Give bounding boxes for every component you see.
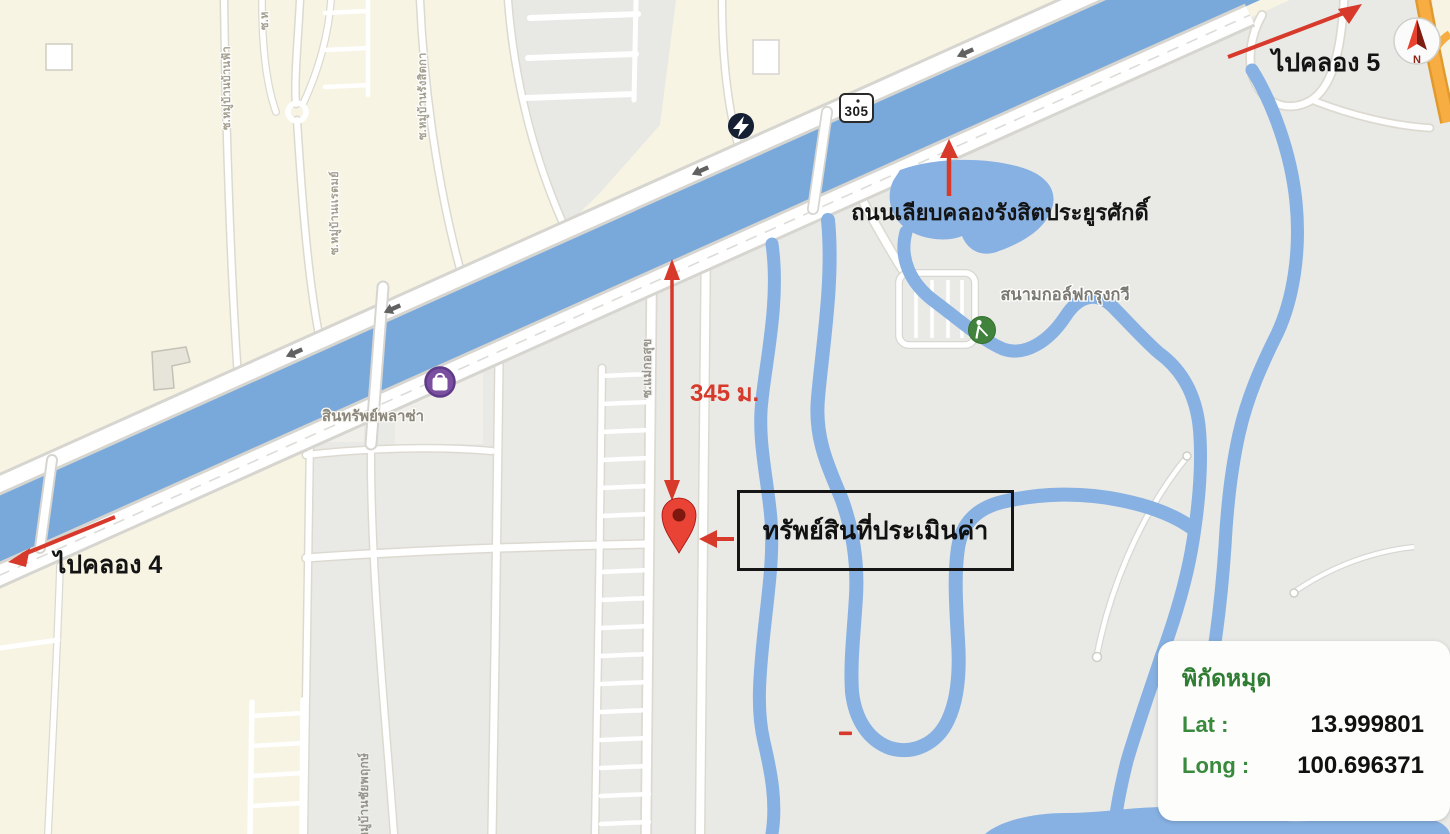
- canal-road-name-label: ถนนเลียบคลองรังสิตประยูรศักดิ์: [851, 196, 1151, 227]
- street-label-chaiyapruek: ซ.หมู่บ้านชัยพฤกษ์: [357, 753, 372, 834]
- svg-text:305: 305: [844, 104, 868, 119]
- lat-value: 13.999801: [1311, 711, 1424, 739]
- lat-row: Lat : 13.999801: [1182, 711, 1424, 739]
- route-305-badge: 305: [840, 94, 873, 122]
- compass-n-letter: N: [1413, 54, 1421, 66]
- golf-course-icon: [969, 317, 996, 344]
- street-label-pin-soi: ซ.แม่กอสุข: [640, 338, 655, 398]
- long-value: 100.696371: [1297, 752, 1424, 780]
- street-label-soi3: ซ.หมู่บ้านเเรตมย์: [328, 171, 342, 255]
- to-khlong-5-label: ไปคลอง 5: [1269, 47, 1381, 77]
- distance-label: 345 ม.: [690, 380, 759, 407]
- shopping-mall-icon: [426, 368, 455, 397]
- lat-label: Lat :: [1182, 712, 1228, 738]
- red-dash-mark: [839, 732, 852, 736]
- to-khlong-4-label: ไปคลอง 4: [51, 549, 163, 579]
- map-screenshot: 305 N สนามกอล์ฟกรุงกวี สินทรัพย์พลาซ่า ซ…: [0, 0, 1450, 834]
- street-label-soi2: ซ.ห: [259, 11, 271, 30]
- property-annotation-box: ทรัพย์สินที่ประเมินค่า: [737, 490, 1014, 571]
- property-annotation-label: ทรัพย์สินที่ประเมินค่า: [763, 511, 988, 551]
- street-label-soi4: ซ.หมู่บ้านรังสิตกา: [416, 52, 430, 140]
- long-label: Long :: [1182, 753, 1249, 779]
- long-row: Long : 100.696371: [1182, 752, 1424, 780]
- coordinate-card: พิกัดหมุด Lat : 13.999801 Long : 100.696…: [1158, 641, 1450, 821]
- golf-course-label: สนามกอล์ฟกรุงกวี: [1000, 285, 1129, 305]
- plaza-label: สินทรัพย์พลาซ่า: [322, 407, 424, 425]
- coordinate-card-title: พิกัดหมุด: [1182, 661, 1424, 697]
- street-label-soi1: ซ.หมู่บ้านบ้านฟ้า: [220, 46, 234, 130]
- ev-charger-icon: [728, 113, 754, 139]
